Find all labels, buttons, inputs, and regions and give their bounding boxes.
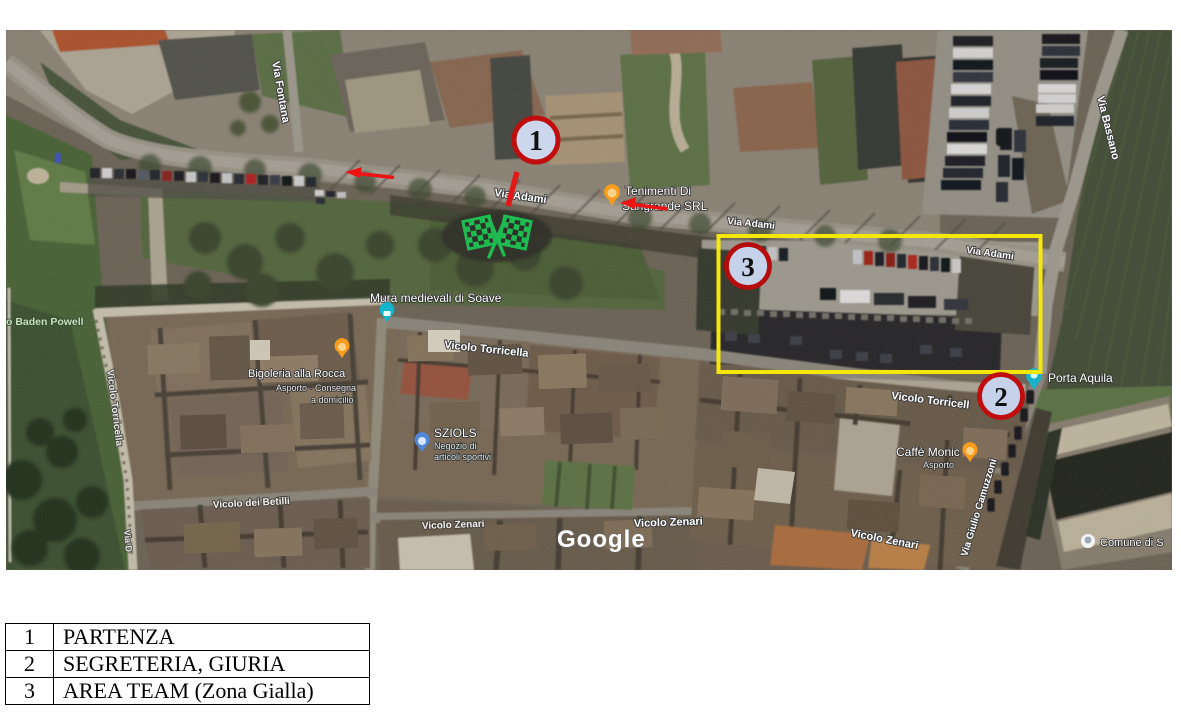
svg-text:SZIOLS: SZIOLS (434, 426, 477, 440)
svg-text:Via D: Via D (122, 529, 134, 553)
svg-text:2: 2 (994, 382, 1008, 412)
svg-text:Caffè Monic: Caffè Monic (896, 445, 960, 459)
svg-text:Negozio di: Negozio di (434, 441, 477, 451)
svg-text:Bigoleria alla Rocca: Bigoleria alla Rocca (248, 368, 346, 380)
svg-text:Comune di S: Comune di S (1100, 537, 1164, 549)
svg-text:Tenimenti Di: Tenimenti Di (625, 184, 691, 198)
svg-text:Asporto · Consegna: Asporto · Consegna (276, 383, 356, 393)
svg-text:Vicolo Zenari: Vicolo Zenari (422, 519, 485, 532)
svg-text:a domicilio: a domicilio (311, 395, 354, 405)
svg-text:o Baden Powell: o Baden Powell (6, 316, 84, 328)
svg-text:Asporto: Asporto (923, 460, 954, 470)
svg-text:3: 3 (741, 252, 755, 282)
svg-text:Porta Aquila: Porta Aquila (1048, 371, 1113, 385)
svg-text:articoli sportivi: articoli sportivi (434, 452, 491, 462)
svg-text:Google: Google (557, 526, 646, 553)
svg-text:1: 1 (529, 126, 543, 157)
